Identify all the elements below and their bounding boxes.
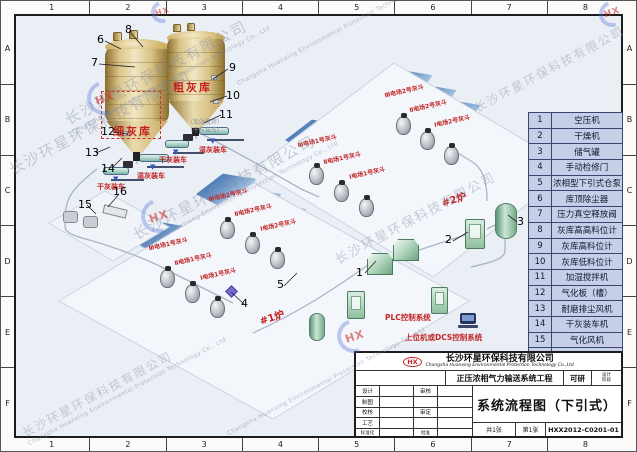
- dry-loading-label-coarse: 干灰装车: [159, 155, 187, 165]
- legend-name: 加湿搅拌机: [552, 270, 622, 285]
- zone-col: 3: [166, 438, 242, 451]
- zone-col: 3: [166, 1, 242, 14]
- zone-rows-left: ABCDEF: [1, 14, 14, 438]
- field-ratify-value: [438, 429, 473, 436]
- callout-1: 1: [356, 266, 363, 279]
- callout-8: 8: [125, 23, 132, 36]
- callout-4: 4: [241, 297, 248, 310]
- zone-row: B: [1, 84, 14, 155]
- zone-col: 1: [14, 1, 89, 14]
- callout-15: 15: [78, 198, 92, 211]
- silo-pump: [309, 166, 324, 185]
- air-compressor-icon: [367, 253, 393, 275]
- legend-num: 9: [529, 239, 551, 254]
- field-standard: 标准化: [356, 429, 380, 436]
- roof-dust-collector-icon: [173, 24, 181, 32]
- field-blank: [414, 397, 438, 408]
- gasification-fan-icon: [83, 216, 98, 228]
- zone-col: 6: [394, 1, 470, 14]
- field-ratify: 批准: [414, 429, 438, 436]
- design-stage-value: 可研: [564, 371, 592, 386]
- legend-num: 11: [529, 270, 551, 285]
- zone-col: 7: [471, 438, 547, 451]
- silo-pump: [210, 299, 225, 318]
- field-process-value: [380, 418, 414, 429]
- legend-num: 15: [529, 333, 551, 348]
- zone-col: 7: [471, 1, 547, 14]
- field-review: 审核: [414, 386, 438, 397]
- legend-name: 灰库高料位计: [552, 239, 622, 254]
- sheet-number: 第1张: [516, 423, 546, 436]
- zone-col: 2: [89, 1, 165, 14]
- legend-name: 库顶除尘器: [552, 191, 622, 206]
- legend-name: 浓相型下引式仓泵: [552, 176, 622, 191]
- callout-6: 6: [97, 33, 104, 46]
- legend-name: 压力真空释放阀: [552, 207, 622, 222]
- legend-num: 8: [529, 223, 551, 238]
- legend-num: 5: [529, 176, 551, 191]
- drawing-number: HXX2012-C0201-01: [546, 423, 621, 436]
- sheets-total: 共1张: [473, 423, 516, 436]
- zone-row: C: [623, 155, 636, 226]
- legend-num: 2: [529, 129, 551, 144]
- zone-col: 2: [89, 438, 165, 451]
- zone-col: 4: [242, 1, 318, 14]
- field-design-value: [380, 386, 414, 397]
- legend-name: 气化风机: [552, 333, 622, 348]
- field-approve: 审定: [414, 408, 438, 419]
- field-review-value: [438, 386, 473, 397]
- dry-ash-loader-coarse: [165, 140, 189, 148]
- legend-name: 空压机: [552, 113, 622, 128]
- silo-pump: [444, 146, 459, 165]
- legend-num: 13: [529, 301, 551, 316]
- zone-columns-bottom: 12345678: [14, 438, 623, 451]
- field-standard-value: [380, 429, 414, 436]
- wet-loading-label-fine: 湿灰装车: [137, 171, 165, 181]
- low-level-gauge-icon: [213, 99, 219, 104]
- zone-col: 8: [547, 438, 623, 451]
- silo-pump: [160, 269, 175, 288]
- field-check: 校核: [356, 408, 380, 419]
- legend-num: 12: [529, 286, 551, 301]
- zone-col: 1: [14, 438, 89, 451]
- zone-col: 6: [394, 438, 470, 451]
- field-blank-value: [438, 397, 473, 408]
- zone-row: E: [623, 296, 636, 367]
- plc-label: PLC控制系统: [385, 312, 431, 323]
- zone-row: A: [623, 14, 636, 84]
- down-arrow-icon: ▼: [210, 137, 215, 145]
- silo-pump: [220, 220, 235, 239]
- legend-num: 14: [529, 317, 551, 332]
- legend-table: 1空压机 2干燥机 3储气罐 4手动检修门 5浓相型下引式仓泵 6库顶除尘器 7…: [528, 112, 623, 364]
- zone-rows-right: ABCDEF: [623, 14, 636, 438]
- callout-12: 12: [101, 125, 115, 138]
- callout-5: 5: [277, 278, 284, 291]
- callout-10: 10: [226, 89, 240, 102]
- zone-col: 4: [242, 438, 318, 451]
- legend-num: 4: [529, 160, 551, 175]
- field-draft-value: [380, 397, 414, 408]
- zone-row: A: [1, 14, 14, 84]
- humidifying-mixer-fine: [123, 161, 133, 168]
- callout-7: 7: [91, 56, 98, 69]
- legend-num: 7: [529, 207, 551, 222]
- silo-pump: [270, 250, 285, 269]
- field-approve-value: [438, 408, 473, 419]
- legend-num: 1: [529, 113, 551, 128]
- field-process: 工艺: [356, 418, 380, 429]
- field-draft: 制图: [356, 397, 380, 408]
- silo-pump: [359, 198, 374, 217]
- stage-label-bottom: 阶段: [602, 378, 611, 383]
- project-row-blank: [356, 371, 446, 386]
- silo-pump: [334, 183, 349, 202]
- legend-name: 耐磨排尘风机: [552, 301, 622, 316]
- legend-name: 手动检修门: [552, 160, 622, 175]
- zone-row: D: [1, 225, 14, 296]
- callout-9: 9: [229, 61, 236, 74]
- company-name-en: Changsha Huanxing Environmental Protecti…: [426, 364, 574, 369]
- drawing-title: 系统流程图（下引式）: [473, 386, 621, 423]
- callout-2: 2: [445, 233, 452, 246]
- down-arrow-icon: ▼: [150, 163, 155, 171]
- fine-silo-discharge: [133, 152, 140, 161]
- gasification-fan-icon: [63, 211, 78, 223]
- zone-columns-top: 12345678: [14, 1, 623, 14]
- silo-pump: [396, 116, 411, 135]
- dcs-label: 上位机或DCS控制系统: [405, 332, 482, 343]
- plc-cabinet-icon: [431, 287, 448, 314]
- humidifying-mixer-coarse: [183, 134, 193, 141]
- legend-name: 储气罐: [552, 144, 622, 159]
- zone-row: C: [1, 155, 14, 226]
- wet-loading-label-coarse: 湿灰装车: [199, 145, 227, 155]
- title-block: HX 长沙环星环保科技有限公司 Changsha Huanxing Enviro…: [354, 351, 623, 438]
- zone-row: F: [1, 367, 14, 438]
- legend-name: 气化板（槽）: [552, 286, 622, 301]
- zone-col: 5: [318, 1, 394, 14]
- callout-3: 3: [517, 215, 524, 228]
- dry-loading-note: （干灰装车）: [187, 125, 223, 134]
- zone-row: F: [623, 367, 636, 438]
- drawing-sheet: 细灰库 ▼ 湿灰装车 ▼ 干灰装车 粗灰库 （加湿搅拌） （干灰装车） ▼ 湿灰…: [0, 0, 637, 452]
- legend-name: 灰库高高料位计: [552, 223, 622, 238]
- air-storage-tank-icon: [309, 313, 325, 341]
- silo-pump: [185, 284, 200, 303]
- company-logo: HX: [403, 357, 421, 367]
- dryer-icon: [465, 219, 485, 249]
- field-blank2-value: [438, 418, 473, 429]
- zone-col: 8: [547, 1, 623, 14]
- zone-col: 5: [318, 438, 394, 451]
- company-row: HX 长沙环星环保科技有限公司 Changsha Huanxing Enviro…: [356, 353, 621, 371]
- callout-11: 11: [219, 108, 233, 121]
- silo-pump: [245, 235, 260, 254]
- zone-row: B: [623, 84, 636, 155]
- dcs-computer-icon: [460, 313, 476, 324]
- field-design: 设计: [356, 386, 380, 397]
- field-blank2: [414, 418, 438, 429]
- field-check-value: [380, 408, 414, 419]
- silo-pump: [420, 131, 435, 150]
- legend-name: 干燥机: [552, 129, 622, 144]
- legend-num: 6: [529, 191, 551, 206]
- zone-row: E: [1, 296, 14, 367]
- legend-num: 10: [529, 254, 551, 269]
- callout-16: 16: [113, 185, 127, 198]
- legend-num: 3: [529, 144, 551, 159]
- legend-name: 干灰装车机: [552, 317, 622, 332]
- coarse-silo-label: 粗灰库: [173, 79, 212, 95]
- callout-13: 13: [85, 146, 99, 159]
- air-storage-tank-icon: [495, 203, 517, 239]
- project-name: 正压浓相气力输送系统工程: [446, 371, 564, 386]
- pressure-vacuum-valve-icon: [187, 23, 195, 31]
- air-compressor-icon: [393, 239, 419, 261]
- legend-name: 灰库低料位计: [552, 254, 622, 269]
- design-stage-label: 设计 阶段: [592, 371, 621, 386]
- fine-silo-label: 细灰库: [113, 123, 152, 139]
- zone-row: D: [623, 225, 636, 296]
- callout-14: 14: [101, 162, 115, 175]
- dryer-icon: [347, 291, 365, 319]
